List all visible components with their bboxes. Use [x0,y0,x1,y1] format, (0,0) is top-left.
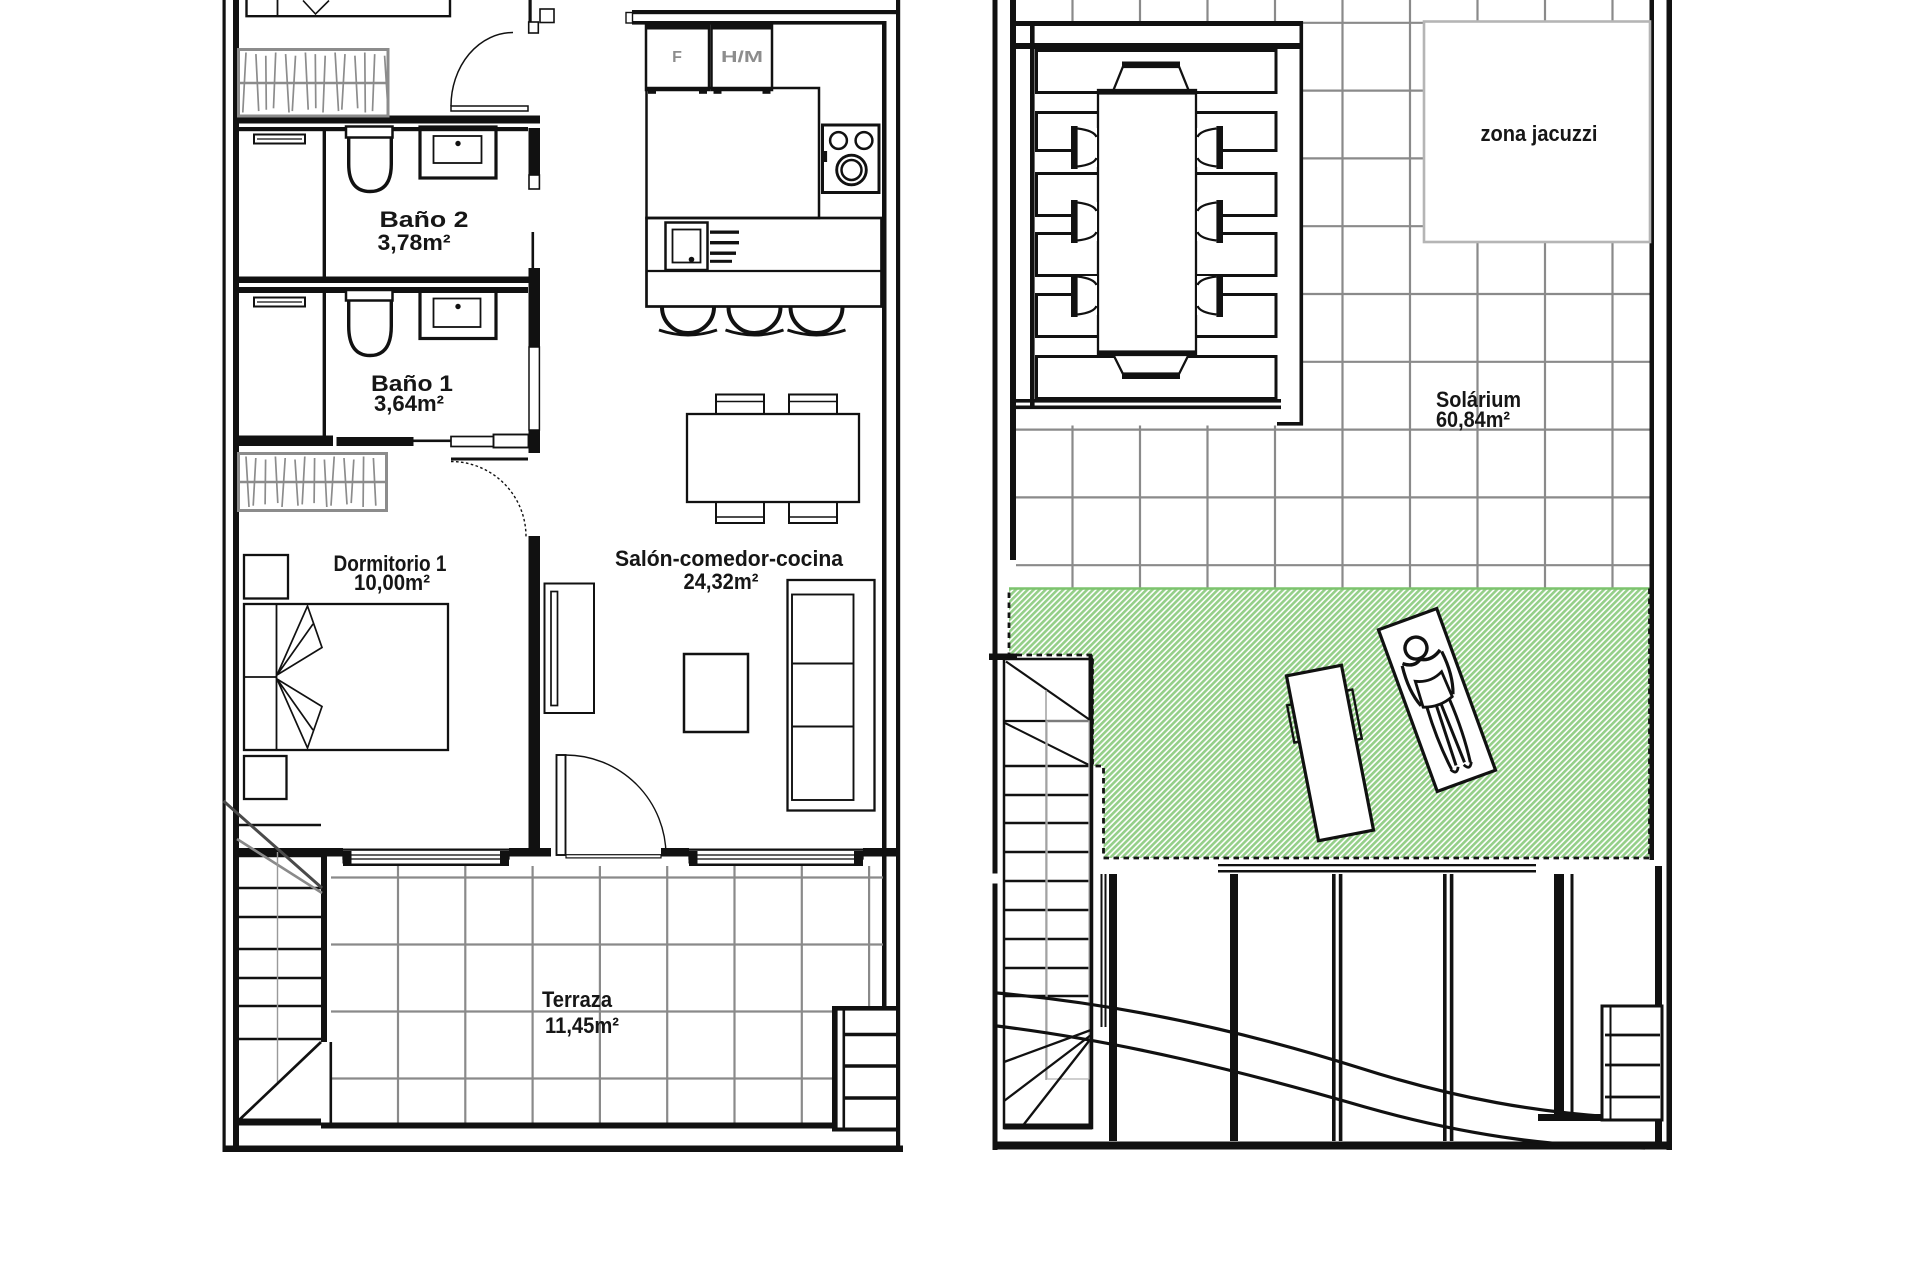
svg-text:11,45m²: 11,45m² [545,1013,619,1038]
svg-text:F: F [672,49,682,66]
svg-text:zona jacuzzi: zona jacuzzi [1481,121,1598,146]
svg-text:Terraza: Terraza [542,987,613,1012]
svg-text:Baño 2: Baño 2 [380,207,469,232]
svg-text:3,64m²: 3,64m² [374,391,444,416]
svg-text:H/M: H/M [721,49,763,66]
svg-text:60,84m²: 60,84m² [1436,407,1510,432]
svg-text:3,78m²: 3,78m² [378,230,451,255]
svg-text:Salón-comedor-cocina: Salón-comedor-cocina [615,546,844,571]
svg-text:10,00m²: 10,00m² [354,570,430,595]
svg-text:24,32m²: 24,32m² [684,569,759,594]
